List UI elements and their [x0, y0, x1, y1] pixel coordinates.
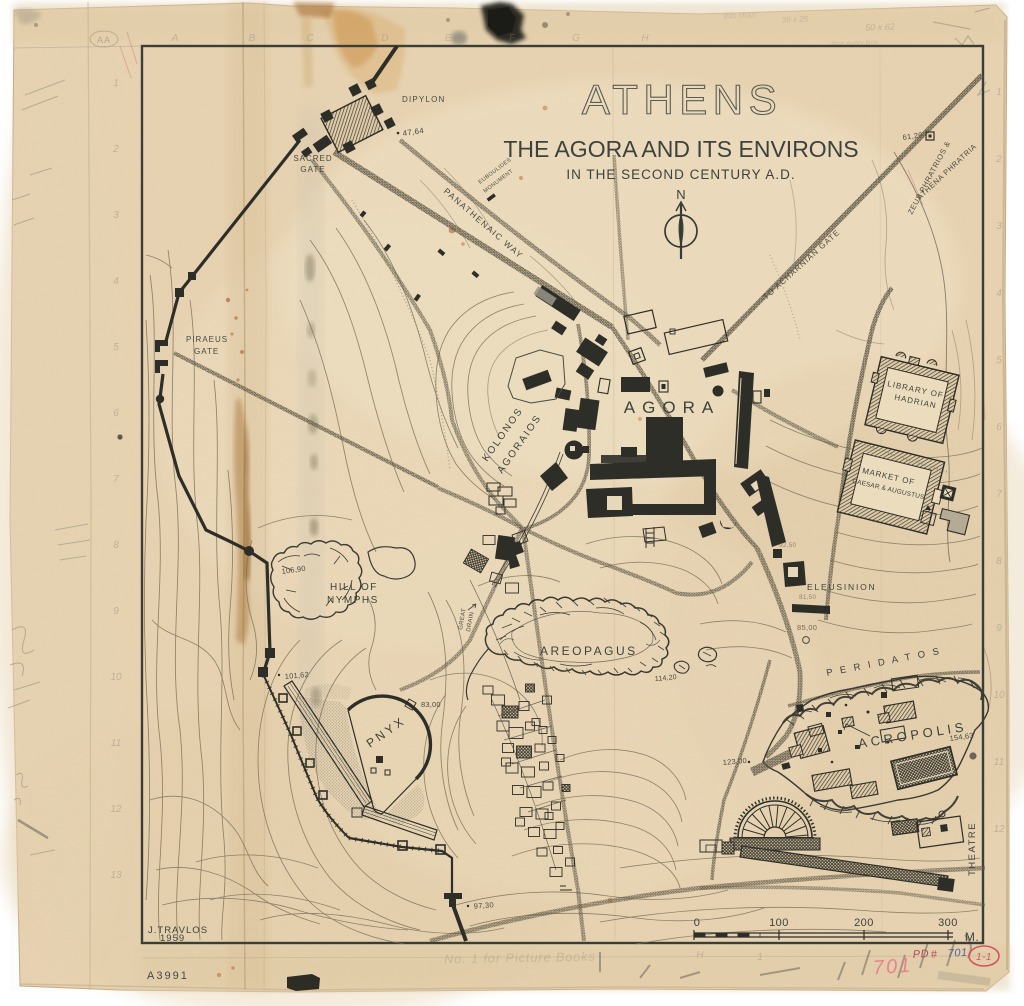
svg-text:PD: PD	[912, 948, 929, 961]
svg-text:7: 7	[113, 474, 119, 485]
svg-text:13: 13	[110, 870, 122, 881]
svg-text:ELEUSINION: ELEUSINION	[807, 582, 877, 592]
svg-text:11: 11	[994, 757, 1004, 768]
svg-text:85,00: 85,00	[797, 623, 817, 632]
svg-text:7: 7	[996, 489, 1002, 500]
svg-text:M.: M.	[965, 930, 979, 944]
svg-text:300: 300	[938, 917, 958, 929]
svg-text:GATE: GATE	[300, 165, 325, 174]
svg-text:1: 1	[113, 78, 119, 89]
svg-text:9: 9	[113, 606, 119, 617]
svg-text:97,30: 97,30	[473, 900, 494, 910]
svg-text:10: 10	[110, 672, 122, 683]
svg-text:No. 1 for Picture Books: No. 1 for Picture Books	[444, 950, 596, 967]
svg-text:this chart: this chart	[724, 10, 758, 20]
svg-text:F: F	[509, 33, 516, 44]
svg-text:12: 12	[110, 804, 122, 815]
svg-text:HILL OF: HILL OF	[330, 582, 378, 593]
svg-text:9: 9	[996, 623, 1002, 634]
svg-text:E: E	[445, 33, 452, 44]
svg-text:8: 8	[113, 540, 119, 551]
svg-text:100: 100	[769, 917, 789, 929]
svg-text:DIPYLON: DIPYLON	[402, 95, 446, 104]
svg-text:G: G	[572, 33, 580, 44]
svg-text:11: 11	[111, 738, 121, 749]
svg-text:PIRAEUS: PIRAEUS	[186, 335, 228, 344]
svg-text:1-1: 1-1	[976, 952, 992, 963]
svg-text:NYMPHS: NYMPHS	[327, 595, 379, 606]
svg-text:92,50: 92,50	[779, 542, 796, 549]
svg-text:6: 6	[113, 408, 119, 419]
svg-text:C: C	[306, 33, 314, 44]
svg-text:1: 1	[757, 952, 763, 963]
svg-text:A3991: A3991	[147, 970, 189, 982]
svg-text:SACRED: SACRED	[293, 154, 332, 163]
svg-text:5: 5	[113, 342, 119, 353]
svg-text:701: 701	[947, 947, 968, 960]
svg-text:4: 4	[996, 288, 1002, 299]
svg-text:ATHENS: ATHENS	[582, 76, 782, 123]
svg-text:D: D	[381, 33, 388, 44]
svg-text:H: H	[696, 950, 704, 961]
svg-text:A: A	[171, 33, 179, 44]
svg-text:H: H	[641, 33, 649, 44]
svg-text:81,50: 81,50	[799, 594, 816, 601]
svg-text:3: 3	[996, 221, 1002, 232]
svg-text:N: N	[676, 187, 685, 202]
svg-text:4: 4	[113, 276, 119, 287]
svg-text:0: 0	[694, 917, 701, 929]
svg-text:83,00: 83,00	[421, 700, 441, 709]
svg-text:AA: AA	[97, 35, 111, 45]
svg-text:50 x 62: 50 x 62	[865, 21, 895, 32]
svg-text:5: 5	[996, 355, 1002, 366]
svg-text:AREOPAGUS: AREOPAGUS	[540, 644, 638, 658]
svg-text:12: 12	[993, 824, 1005, 835]
svg-text:39 x 25: 39 x 25	[782, 15, 809, 25]
svg-text:2: 2	[112, 144, 119, 155]
svg-text:THE AGORA AND ITS ENVIRONS: THE AGORA AND ITS ENVIRONS	[503, 136, 858, 162]
svg-text:2: 2	[995, 154, 1002, 165]
svg-text:6: 6	[996, 422, 1002, 433]
svg-text:200: 200	[854, 917, 874, 929]
svg-text:GATE: GATE	[194, 347, 219, 356]
svg-text:B: B	[249, 33, 256, 44]
svg-text:IN THE SECOND CENTURY A.D.: IN THE SECOND CENTURY A.D.	[566, 167, 795, 182]
svg-text:AGORA: AGORA	[624, 398, 720, 417]
svg-text:701: 701	[872, 955, 913, 980]
svg-text:8: 8	[996, 556, 1002, 567]
svg-text:10: 10	[993, 690, 1005, 701]
svg-text:#: #	[930, 949, 938, 961]
svg-text:1: 1	[996, 87, 1002, 98]
svg-text:1959: 1959	[160, 933, 185, 944]
svg-text:THEATRE: THEATRE	[967, 822, 978, 876]
svg-text:3: 3	[113, 210, 119, 221]
